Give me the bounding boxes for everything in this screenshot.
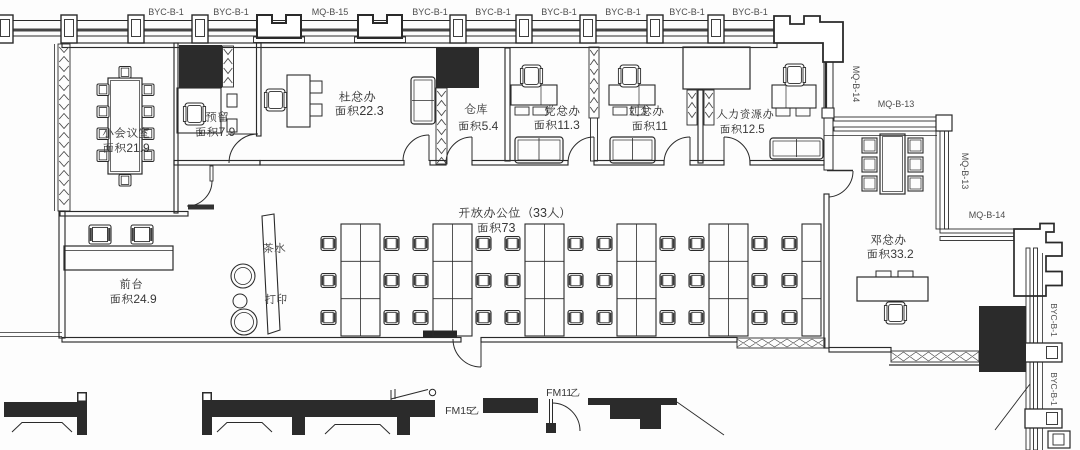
svg-text:33.2: 33.2 [890,247,914,261]
svg-text:BYC-B-1: BYC-B-1 [1049,372,1059,406]
svg-text:FM15: FM15 [445,405,472,417]
svg-text:33: 33 [533,206,547,220]
svg-text:BYC-B-1: BYC-B-1 [213,7,249,17]
svg-text:BYC-B-1: BYC-B-1 [669,7,705,17]
svg-text:7.9: 7.9 [219,125,236,139]
svg-text:MQ-B-13: MQ-B-13 [960,153,970,190]
svg-text:MQ-B-14: MQ-B-14 [851,66,861,103]
svg-text:BYC-B-1: BYC-B-1 [605,7,641,17]
svg-text:22.3: 22.3 [359,104,383,118]
svg-text:MQ-B-13: MQ-B-13 [878,99,915,109]
svg-text:BYC-B-1: BYC-B-1 [148,7,184,17]
svg-text:BYC-B-1: BYC-B-1 [412,7,448,17]
svg-text:BYC-B-1: BYC-B-1 [475,7,511,17]
svg-text:11.3: 11.3 [557,118,580,132]
svg-text:BYC-B-1: BYC-B-1 [732,7,768,17]
svg-text:12.5: 12.5 [742,124,764,136]
svg-text:BYC-B-1: BYC-B-1 [1049,303,1059,337]
svg-text:11: 11 [655,119,668,133]
svg-text:73: 73 [502,221,516,235]
svg-text:MQ-B-15: MQ-B-15 [312,7,349,17]
svg-text:5.4: 5.4 [482,119,499,133]
svg-text:21.9: 21.9 [126,141,150,155]
svg-text:MQ-B-14: MQ-B-14 [969,210,1006,220]
svg-text:BYC-B-1: BYC-B-1 [541,7,577,17]
svg-text:FM11: FM11 [546,387,572,399]
svg-text:24.9: 24.9 [133,292,157,306]
